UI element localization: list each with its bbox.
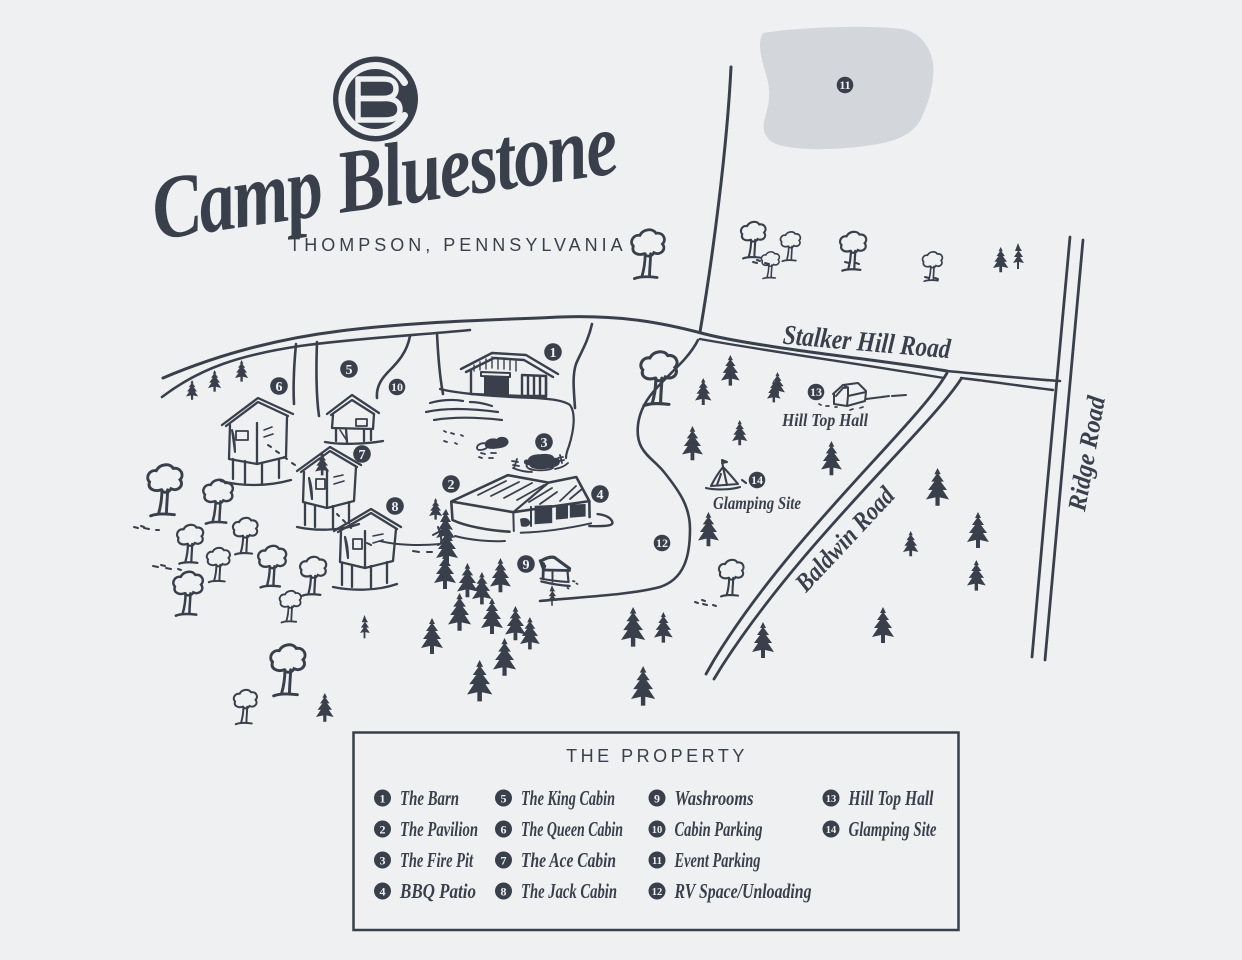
svg-text:Hill Top Hall: Hill Top Hall [848,786,934,810]
svg-text:5: 5 [501,791,507,805]
svg-text:13: 13 [810,385,822,399]
svg-text:RV Space/Unloading: RV Space/Unloading [674,879,812,903]
svg-text:8: 8 [501,884,507,898]
svg-text:8: 8 [392,500,399,515]
svg-text:7: 7 [359,448,366,463]
svg-text:9: 9 [654,791,660,805]
svg-text:12: 12 [652,887,663,898]
svg-text:The Pavilion: The Pavilion [400,817,478,841]
svg-text:The King Cabin: The King Cabin [521,786,615,810]
svg-text:1: 1 [550,346,557,361]
svg-text:The Barn: The Barn [400,786,459,810]
svg-text:Glamping Site: Glamping Site [849,817,937,841]
svg-text:The Ace Cabin: The Ace Cabin [521,848,616,872]
svg-text:6: 6 [276,380,283,395]
svg-text:11: 11 [839,78,850,92]
svg-text:14: 14 [826,825,837,836]
svg-text:7: 7 [501,853,507,867]
svg-text:9: 9 [523,558,530,573]
svg-text:THOMPSON, PENNSYLVANIA: THOMPSON, PENNSYLVANIA [289,235,626,255]
svg-text:4: 4 [597,488,604,503]
svg-text:2: 2 [448,478,455,493]
svg-text:10: 10 [391,380,403,394]
svg-text:11: 11 [652,856,662,867]
svg-text:2: 2 [380,822,386,836]
svg-text:Hill Top Hall: Hill Top Hall [781,410,868,430]
svg-text:6: 6 [501,822,507,836]
svg-text:BBQ Patio: BBQ Patio [399,879,476,903]
svg-text:5: 5 [346,363,353,378]
svg-text:The Fire Pit: The Fire Pit [400,848,474,872]
svg-text:THE PROPERTY: THE PROPERTY [566,746,748,766]
svg-text:Washrooms: Washrooms [675,786,754,810]
svg-text:3: 3 [541,436,548,451]
svg-text:13: 13 [826,794,837,805]
svg-text:Glamping Site: Glamping Site [713,493,801,513]
svg-text:The Jack Cabin: The Jack Cabin [521,879,617,903]
svg-text:1: 1 [380,791,386,805]
svg-text:12: 12 [656,536,668,550]
svg-text:Cabin Parking: Cabin Parking [675,817,763,841]
svg-text:3: 3 [380,853,386,867]
svg-text:Event Parking: Event Parking [674,848,761,872]
svg-text:10: 10 [652,825,663,836]
svg-text:The Queen Cabin: The Queen Cabin [521,817,623,841]
svg-text:4: 4 [380,884,386,898]
svg-text:14: 14 [751,473,763,487]
